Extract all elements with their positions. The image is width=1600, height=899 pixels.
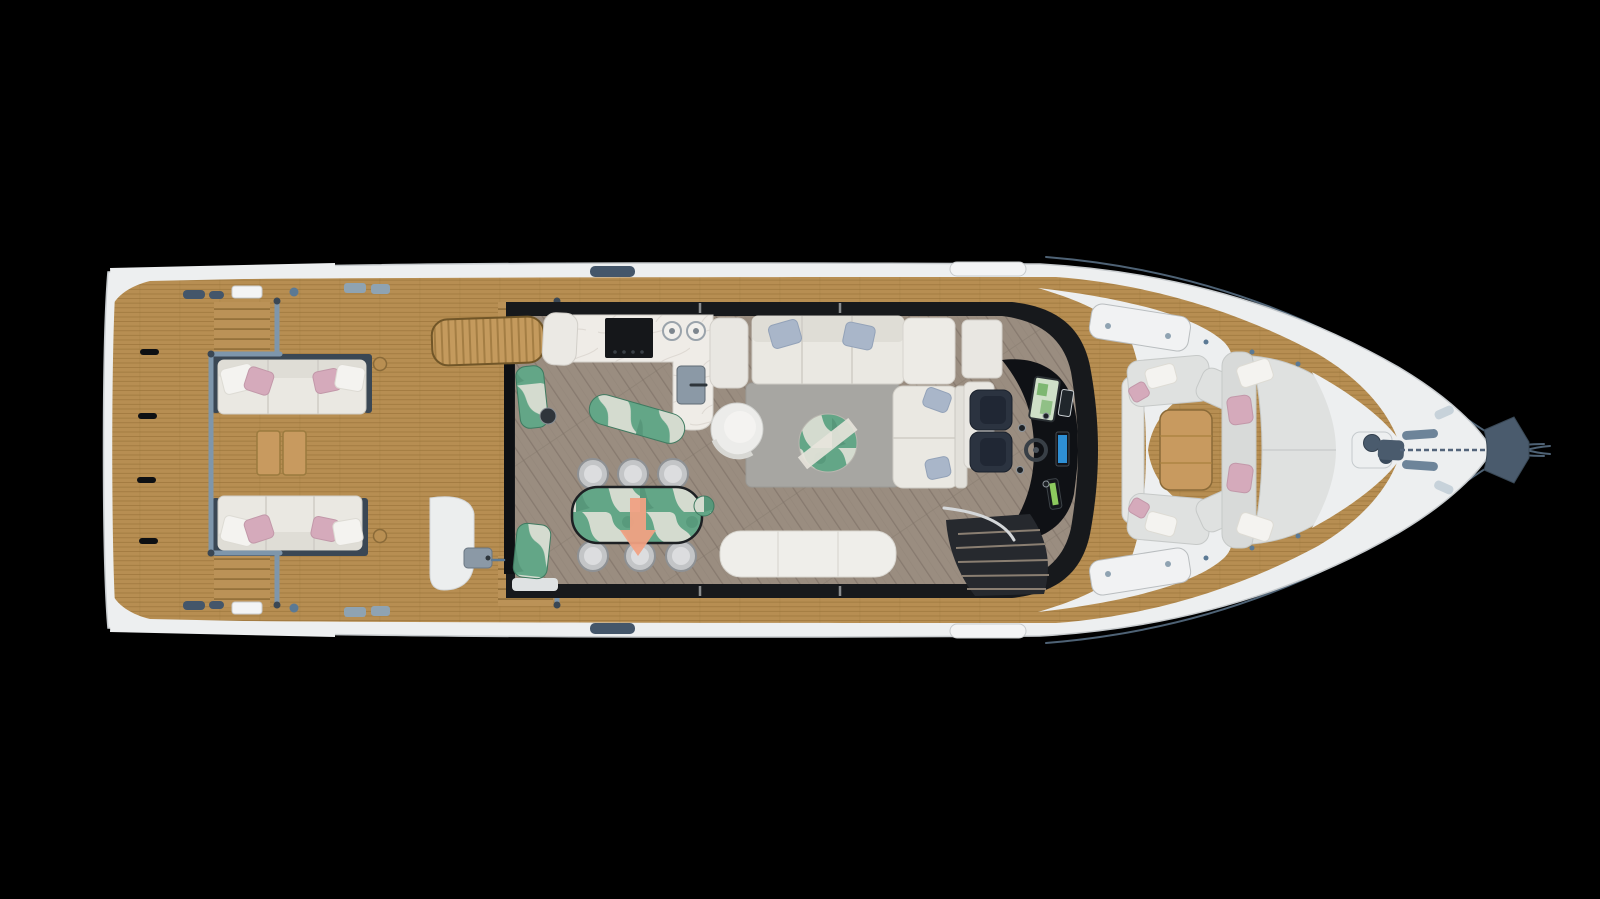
console-body — [430, 497, 474, 590]
white-pillow — [332, 518, 364, 546]
hatch-pull — [138, 413, 157, 419]
aft-sofa-top — [212, 354, 372, 414]
cleat-icon — [590, 623, 635, 634]
table-leaf — [283, 431, 306, 475]
deck-fitting — [371, 606, 390, 616]
bow-roller-platform — [1484, 417, 1529, 483]
dining-chair — [618, 459, 648, 489]
dining-chair — [578, 459, 608, 489]
pink-pillow — [1226, 462, 1254, 493]
deck-pad — [232, 602, 262, 614]
mooring-point-icon — [290, 604, 299, 613]
cleat-icon — [209, 601, 224, 609]
boarding-area — [431, 312, 578, 366]
dining-chair — [666, 541, 696, 571]
door-sill — [512, 578, 558, 591]
dining-chair — [658, 459, 688, 489]
hatch-pull — [139, 538, 158, 544]
hatch-fitting — [1165, 333, 1171, 339]
deck-fitting — [344, 283, 366, 293]
deck-pad — [232, 286, 262, 298]
white-pillow — [334, 364, 366, 392]
cleat-icon — [209, 291, 224, 299]
green-side-table — [694, 496, 714, 516]
aft-sofa-bottom — [212, 496, 368, 556]
helm-cabinet — [962, 320, 1002, 378]
yacht-top-view — [0, 0, 1600, 899]
cooktop-icon — [605, 318, 653, 358]
salon-cabinet — [710, 318, 748, 388]
cleat-icon — [590, 266, 635, 277]
yacht-deck-plan-render — [0, 0, 1600, 899]
windlass-gypsy — [1364, 435, 1381, 452]
green-marble-pillar — [512, 522, 551, 579]
helm-seat — [970, 432, 1012, 472]
table-leaf — [257, 431, 280, 475]
deck-hatch — [950, 624, 1026, 638]
console-knob — [486, 556, 491, 561]
deck-fitting — [371, 284, 390, 294]
passerelle — [431, 316, 545, 366]
pink-pillow — [1226, 394, 1254, 425]
side-door-track — [504, 362, 514, 574]
dining-chair — [578, 541, 608, 571]
stool — [540, 408, 556, 424]
hatch-fitting — [1105, 323, 1111, 329]
dining-area — [572, 459, 702, 571]
coffee-table-round — [798, 414, 858, 472]
hatch-pull — [140, 349, 159, 355]
nav-screen — [1056, 432, 1069, 466]
steps-aft-port — [214, 302, 270, 353]
boarding-seat — [542, 312, 579, 366]
deck-cap — [374, 530, 387, 543]
hatch-fitting — [1165, 561, 1171, 567]
cleat-icon — [183, 601, 205, 610]
mooring-point-icon — [290, 288, 299, 297]
helm-seat — [970, 390, 1012, 430]
bow-table — [1160, 410, 1212, 490]
steps-aft-starboard — [214, 556, 270, 607]
aft-bench — [720, 531, 896, 577]
deck-fitting — [344, 607, 366, 617]
hatch-fitting — [1105, 571, 1111, 577]
blue-pillow — [924, 456, 952, 481]
deck-hatch — [950, 262, 1026, 276]
corner-table — [903, 318, 955, 384]
cleat-icon — [183, 290, 205, 299]
deck-cap — [374, 358, 387, 371]
hatch-pull — [137, 477, 156, 483]
